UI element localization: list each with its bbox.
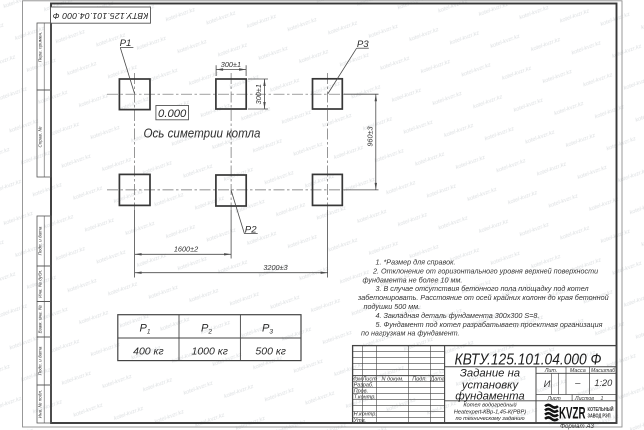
svg-text:Утв.: Утв. — [353, 418, 367, 424]
svg-text:подушки 500 мм.: подушки 500 мм. — [364, 302, 421, 311]
svg-text:Инв. № подл.: Инв. № подл. — [37, 390, 42, 419]
svg-text:Лист: Лист — [546, 396, 561, 402]
svg-text:1000 кг: 1000 кг — [191, 346, 227, 358]
svg-text:КВТУ.125.101.04.000 Ф: КВТУ.125.101.04.000 Ф — [53, 11, 149, 21]
svg-text:400 кг: 400 кг — [133, 346, 164, 358]
svg-text:Р1: Р1 — [120, 38, 132, 49]
svg-text:1: 1 — [601, 396, 604, 402]
svg-text:–: – — [574, 378, 581, 389]
svg-text:Формат А3: Формат А3 — [560, 423, 594, 430]
svg-text:Листов: Листов — [574, 396, 594, 402]
svg-text:Р2: Р2 — [245, 224, 257, 235]
svg-text:И: И — [544, 379, 551, 390]
svg-text:Подп. и дата: Подп. и дата — [37, 346, 42, 375]
svg-text:Подп. и дата: Подп. и дата — [37, 226, 42, 255]
svg-text:установку: установку — [461, 379, 520, 391]
svg-text:Р3: Р3 — [357, 39, 369, 50]
svg-text:по техническому заданию: по техническому заданию — [455, 416, 525, 422]
svg-text:Лит.: Лит. — [544, 368, 558, 374]
svg-text:Ось симетрии котла: Ось симетрии котла — [144, 125, 261, 140]
svg-text:Масса: Масса — [570, 368, 586, 374]
svg-text:Подп.: Подп. — [412, 377, 427, 383]
svg-text:Справ. №: Справ. № — [37, 127, 42, 148]
svg-text:фундамента не более 10 мм.: фундамента не более 10 мм. — [363, 275, 463, 284]
svg-text:500 кг: 500 кг — [255, 346, 286, 358]
svg-text:1. *Размер для справок.: 1. *Размер для справок. — [376, 258, 456, 267]
svg-text:KVZR: KVZR — [559, 404, 586, 423]
svg-text:3. В случае отсутствия бетонно: 3. В случае отсутствия бетонного пола пл… — [376, 284, 589, 293]
svg-text:Н.контр.: Н.контр. — [354, 412, 377, 418]
svg-text:Heatexpert-КВр-1,45-К(РВР): Heatexpert-КВр-1,45-К(РВР) — [454, 409, 526, 415]
svg-text:N докум.: N докум. — [381, 377, 403, 383]
svg-text:2. Отклонение от горизонтально: 2. Отклонение от горизонтального уровня … — [372, 266, 598, 275]
svg-text:по нагрузкам на фундамент.: по нагрузкам на фундамент. — [361, 329, 460, 338]
svg-text:1600±2: 1600±2 — [174, 245, 198, 254]
svg-text:Т.контр.: Т.контр. — [354, 395, 376, 401]
svg-text:1:20: 1:20 — [594, 378, 613, 388]
svg-text:960±3: 960±3 — [365, 126, 374, 146]
svg-text:Дата: Дата — [429, 377, 445, 383]
svg-text:фундамента: фундамента — [455, 391, 524, 403]
svg-text:3200±3: 3200±3 — [263, 263, 287, 272]
svg-text:Лист: Лист — [362, 377, 378, 383]
svg-text:КВТУ.125.101.04.000 Ф: КВТУ.125.101.04.000 Ф — [455, 351, 602, 368]
svg-text:Инв. № дубл.: Инв. № дубл. — [37, 270, 42, 298]
svg-text:5. Фундамент под котел разраба: 5. Фундамент под котел разрабатывает про… — [376, 320, 603, 329]
svg-text:Масштаб: Масштаб — [591, 368, 616, 374]
svg-text:ЗАВОД РЭП: ЗАВОД РЭП — [588, 414, 611, 420]
svg-text:Перв. примен.: Перв. примен. — [37, 32, 42, 63]
svg-text:Взам. инв. №: Взам. инв. № — [37, 305, 42, 333]
svg-text:0.000: 0.000 — [158, 108, 187, 120]
svg-text:КОТЕЛЬНЫЙ: КОТЕЛЬНЫЙ — [588, 405, 614, 413]
svg-text:300±1: 300±1 — [221, 60, 241, 69]
svg-text:Котел водогрейный: Котел водогрейный — [463, 402, 516, 409]
svg-text:Задание на: Задание на — [460, 367, 520, 379]
svg-text:300±1: 300±1 — [254, 84, 263, 104]
svg-text:4. Закладная деталь фундамента: 4. Закладная деталь фундамента 300х300 S… — [376, 311, 540, 320]
svg-text:забетонировать. Расстояние от: забетонировать. Расстояние от осей крайн… — [357, 293, 609, 302]
